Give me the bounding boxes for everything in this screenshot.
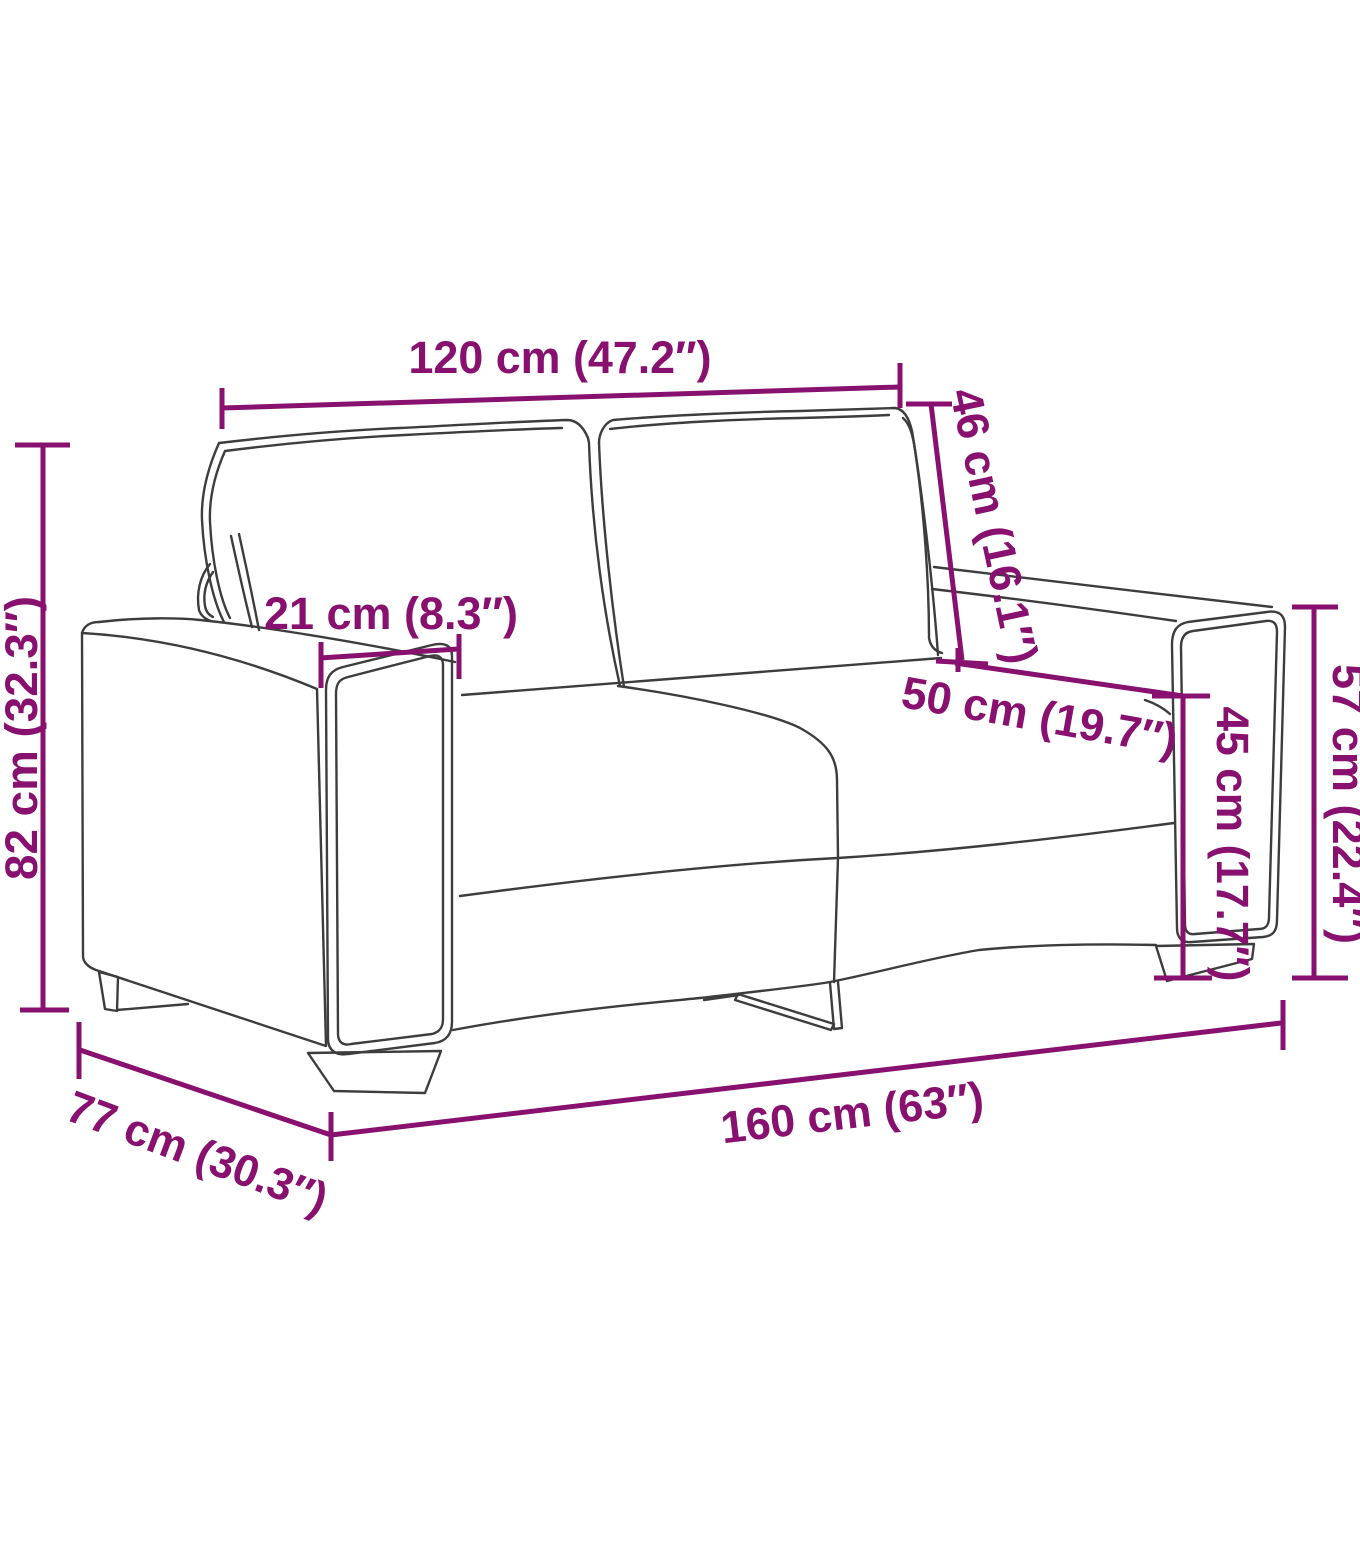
svg-text:45 cm (17.7″): 45 cm (17.7″) — [1207, 707, 1258, 982]
svg-text:82 cm (32.3″): 82 cm (32.3″) — [0, 596, 47, 880]
svg-text:21 cm (8.3″): 21 cm (8.3″) — [264, 588, 518, 639]
svg-text:57 cm (22.4″): 57 cm (22.4″) — [1323, 664, 1360, 944]
svg-text:120 cm (47.2″): 120 cm (47.2″) — [409, 332, 712, 383]
